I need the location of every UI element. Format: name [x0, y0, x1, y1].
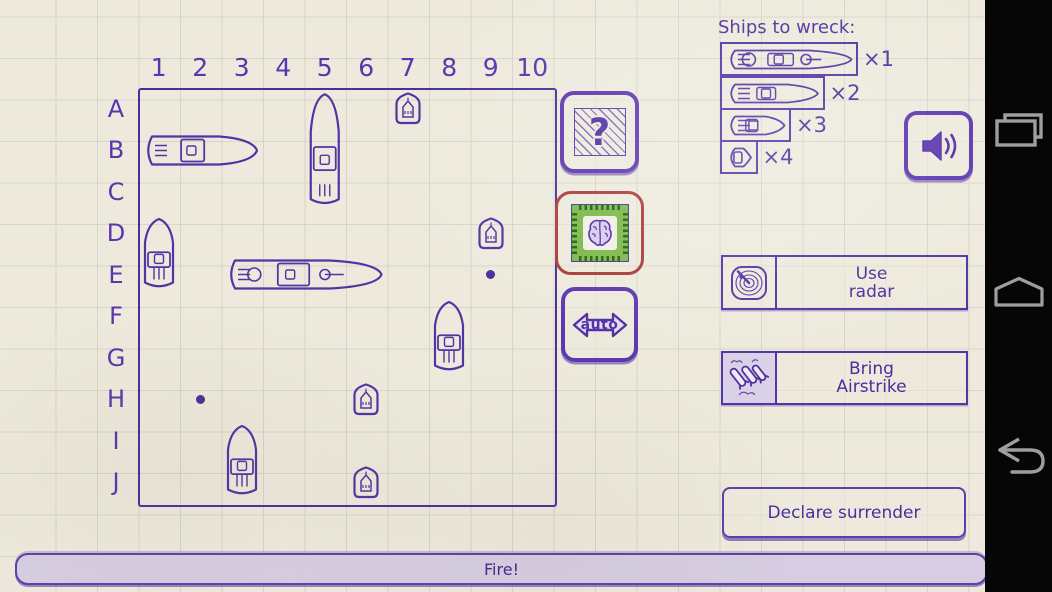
row-label: I: [98, 420, 134, 462]
column-label: 5: [304, 53, 346, 85]
fleet-count-label: ×3: [796, 113, 827, 137]
recents-icon: [995, 113, 1043, 148]
column-label: 8: [429, 53, 471, 85]
fleet-row: ×4: [720, 140, 793, 174]
fleet-panel-title: Ships to wreck:: [718, 17, 855, 38]
auto-button[interactable]: auto: [561, 287, 638, 362]
paper-background: 12345678910 ABCDEFGHIJ ?: [0, 0, 985, 592]
use-radar-label-line2: radar: [849, 283, 895, 301]
airstrike-icon: [723, 353, 777, 403]
column-label: 10: [512, 53, 554, 85]
question-mark-icon: ?: [589, 114, 610, 151]
column-label: 6: [346, 53, 388, 85]
home-button[interactable]: [985, 276, 1052, 308]
row-label: E: [98, 254, 134, 296]
airstrike-label-line1: Bring: [849, 360, 894, 378]
column-labels: 12345678910: [138, 53, 553, 85]
chip-pins-bottom: [579, 256, 621, 261]
use-radar-button[interactable]: Use radar: [721, 255, 968, 310]
android-nav-bar: [985, 0, 1052, 592]
row-label: A: [98, 88, 134, 130]
use-radar-label-line1: Use: [856, 265, 888, 283]
airstrike-label-line2: Airstrike: [836, 378, 906, 396]
fleet-ship-box: [720, 42, 858, 76]
chip-pins-top: [579, 205, 621, 210]
chip-pins-right: [623, 212, 628, 254]
fleet-count-label: ×1: [863, 47, 894, 71]
sound-button[interactable]: [904, 111, 973, 180]
row-label: G: [98, 337, 134, 379]
row-labels: ABCDEFGHIJ: [98, 88, 134, 503]
column-label: 9: [470, 53, 512, 85]
fleet-row: ×1: [720, 42, 894, 76]
battle-grid[interactable]: [138, 88, 557, 507]
fleet-row: ×2: [720, 76, 860, 110]
mystery-opponent-button[interactable]: ?: [560, 91, 639, 173]
column-label: 3: [221, 53, 263, 85]
speaker-icon: [918, 128, 960, 164]
fire-button[interactable]: Fire!: [15, 553, 988, 585]
recent-apps-button[interactable]: [985, 113, 1052, 148]
row-label: B: [98, 130, 134, 172]
fleet-ship-box: [720, 76, 825, 110]
back-icon: [992, 437, 1046, 474]
battleship-game-screen: 12345678910 ABCDEFGHIJ ?: [0, 0, 1052, 592]
row-label: F: [98, 296, 134, 338]
column-label: 1: [138, 53, 180, 85]
row-label: J: [98, 462, 134, 504]
fleet-ship-box: [720, 140, 758, 174]
miss-marker: [196, 395, 205, 404]
fleet-count-label: ×4: [763, 145, 794, 169]
ai-chip-icon: [571, 204, 629, 262]
home-icon: [993, 276, 1045, 308]
chip-pins-left: [572, 212, 577, 254]
radar-icon: [723, 257, 777, 308]
column-label: 7: [387, 53, 429, 85]
auto-label: auto: [581, 317, 619, 333]
row-label: H: [98, 379, 134, 421]
back-button[interactable]: [985, 437, 1052, 474]
fleet-ship-box: [720, 108, 791, 142]
fleet-row: ×3: [720, 108, 827, 142]
declare-surrender-button[interactable]: Declare surrender: [722, 487, 966, 538]
column-label: 2: [180, 53, 222, 85]
row-label: D: [98, 213, 134, 255]
fleet-count-label: ×2: [830, 81, 861, 105]
ai-opponent-turn-indicator: [555, 191, 644, 275]
bring-airstrike-button[interactable]: Bring Airstrike: [721, 351, 968, 405]
row-label: C: [98, 171, 134, 213]
column-label: 4: [263, 53, 305, 85]
surrender-label: Declare surrender: [768, 503, 921, 523]
brain-icon: [583, 216, 617, 250]
fire-label: Fire!: [484, 560, 519, 579]
hatched-box: ?: [574, 108, 626, 156]
